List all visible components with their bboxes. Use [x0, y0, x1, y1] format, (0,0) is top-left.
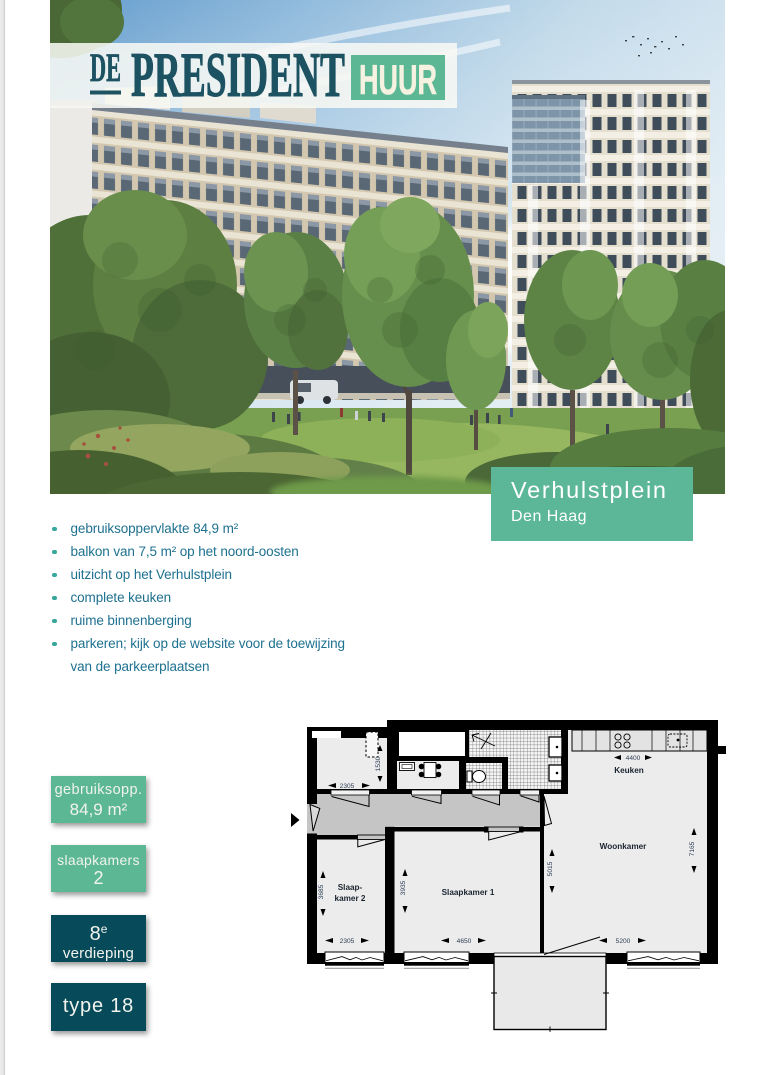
svg-text:PRESIDENT: PRESIDENT	[131, 42, 345, 102]
svg-text:2305: 2305	[340, 938, 355, 945]
svg-text:Slaap-: Slaap-	[338, 883, 363, 892]
svg-text:5200: 5200	[616, 938, 631, 945]
svg-text:Keuken: Keuken	[614, 766, 644, 775]
svg-text:Slaapkamer 1: Slaapkamer 1	[442, 888, 495, 897]
svg-text:HUUR: HUUR	[359, 57, 437, 99]
svg-text:5015: 5015	[547, 861, 554, 876]
svg-text:Woonkamer: Woonkamer	[600, 842, 648, 851]
svg-text:kamer 2: kamer 2	[335, 894, 366, 903]
svg-text:DE: DE	[90, 50, 121, 90]
svg-text:7165: 7165	[689, 841, 696, 856]
svg-text:2305: 2305	[340, 783, 355, 790]
svg-text:1530: 1530	[375, 756, 382, 771]
svg-text:3685: 3685	[318, 884, 325, 899]
svg-text:4650: 4650	[457, 938, 472, 945]
svg-text:4400: 4400	[626, 755, 641, 762]
svg-text:3935: 3935	[400, 880, 407, 895]
